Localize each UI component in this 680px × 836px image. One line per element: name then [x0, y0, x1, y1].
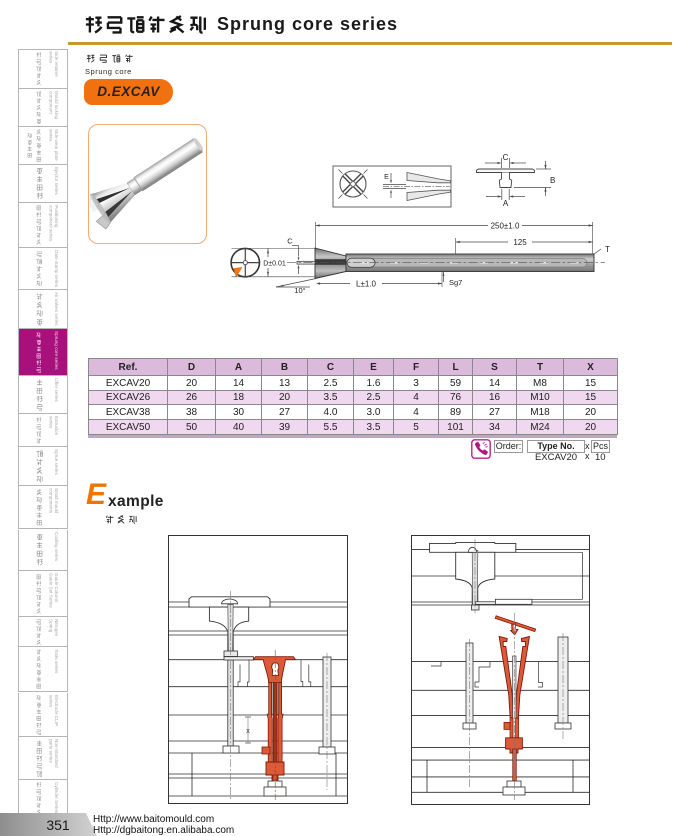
svg-text:C: C — [503, 153, 509, 162]
svg-text:125: 125 — [513, 238, 527, 247]
svg-text:B: B — [550, 176, 555, 185]
svg-text:10°: 10° — [294, 286, 305, 295]
svg-text:351: 351 — [46, 817, 70, 833]
svg-text:250±1.0: 250±1.0 — [491, 222, 520, 231]
svg-text:D±0.01: D±0.01 — [263, 260, 286, 267]
svg-text:L±1.0: L±1.0 — [356, 280, 377, 289]
svg-text:C: C — [287, 237, 293, 246]
svg-text:T: T — [605, 245, 610, 254]
svg-text:Sg7: Sg7 — [449, 278, 462, 287]
svg-text:A: A — [503, 199, 509, 208]
svg-text:E: E — [384, 174, 389, 181]
svg-text:x: x — [246, 728, 250, 735]
